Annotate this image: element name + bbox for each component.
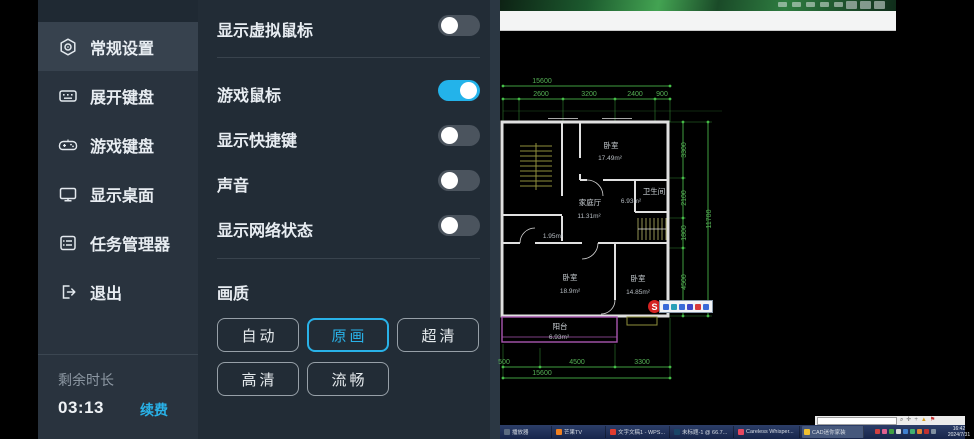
status-bar-spacer (0, 0, 38, 439)
widget-icon[interactable] (687, 304, 693, 310)
system-tray[interactable] (875, 429, 936, 434)
room-bedroom3-name: 卧室 (631, 273, 646, 283)
toggle-network-status[interactable] (438, 215, 480, 236)
room-bedroom1-area: 17.49m² (598, 155, 623, 162)
sidebar-item-label: 显示桌面 (90, 182, 154, 206)
toggle-label-shortcuts: 显示快捷键 (217, 127, 297, 151)
keyboard-icon (58, 86, 78, 106)
taskbar-app-cad[interactable]: CAD迷你家装 (802, 426, 864, 438)
monitor-icon (58, 184, 78, 204)
sidebar-item-label: 退出 (90, 280, 122, 304)
room-bedroom3-area: 14.85m² (626, 289, 651, 296)
sidebar-item-exit[interactable]: 退出 (38, 267, 198, 316)
sidebar-divider (38, 354, 198, 355)
dim-right-4: 4500 (681, 274, 688, 290)
toggle-label-network-status: 显示网络状态 (217, 217, 313, 241)
sidebar-top-band (38, 0, 198, 22)
room-bedroom1-name: 卧室 (604, 140, 619, 150)
taskbar-app-mangotv[interactable]: 芒果TV (554, 426, 606, 438)
taskbar-clock: 16:42 2024/7/31 (944, 426, 974, 438)
magnifier-icon[interactable]: ⌕ (900, 417, 903, 424)
sidebar-item-task-manager[interactable]: 任务管理器 (38, 218, 198, 267)
sidebar-item-label: 游戏键盘 (90, 133, 154, 157)
quality-option-ultra[interactable]: 超清 (397, 318, 479, 352)
app-icon (504, 429, 510, 435)
widget-icon[interactable] (695, 304, 701, 310)
room-balcony-name: 阳台 (553, 321, 568, 331)
divider (217, 258, 480, 259)
warning-icon[interactable]: ▲ (921, 417, 927, 424)
sidebar-item-label: 任务管理器 (90, 231, 170, 255)
taskbar-app-wps[interactable]: 文字文稿1 - WPS... (608, 426, 670, 438)
remaining-time-label: 剩余时长 (58, 370, 114, 390)
dim-right-total: 11700 (706, 209, 713, 228)
renew-button[interactable]: 续费 (140, 400, 168, 420)
sidebar-item-label: 展开键盘 (90, 84, 154, 108)
dim-bottom-2: 4500 (569, 359, 585, 366)
toggle-shortcuts[interactable] (438, 125, 480, 146)
toggle-game-mouse[interactable] (438, 80, 480, 101)
sidebar-item-general-settings[interactable]: 常规设置 (38, 22, 198, 71)
settings-panel: 显示虚拟鼠标 游戏鼠标 显示快捷键 声音 显示网络状态 画质 自动 原画 超清 … (198, 0, 490, 439)
taskbar-app-photoshop[interactable]: 未标题-1 @ 66.7... (672, 426, 734, 438)
widget-icon[interactable] (703, 304, 709, 310)
plus-icon[interactable]: + (914, 417, 918, 424)
dim-top-1: 2600 (533, 91, 549, 98)
task-list-icon (58, 233, 78, 253)
toggle-label-game-mouse: 游戏鼠标 (217, 82, 281, 106)
toggle-label-sound: 声音 (217, 172, 249, 196)
quality-option-original[interactable]: 原画 (307, 318, 389, 352)
dim-top-total: 15600 (532, 78, 552, 85)
room-bedroom2-name: 卧室 (563, 272, 578, 282)
sidebar-item-label: 常规设置 (90, 35, 154, 59)
taskbar-app-player[interactable]: 播放器 (502, 426, 552, 438)
toggle-knob (441, 127, 458, 144)
floating-widget-toolbar[interactable]: S (648, 300, 713, 313)
mango-tv-icon (556, 429, 562, 435)
photoshop-icon (674, 429, 680, 435)
music-icon (738, 429, 744, 435)
widget-icon[interactable] (671, 304, 677, 310)
dim-top-2: 3200 (581, 91, 597, 98)
staircase-upper (520, 143, 552, 190)
quality-option-hd[interactable]: 高清 (217, 362, 299, 396)
sidebar-item-expand-keyboard[interactable]: 展开键盘 (38, 71, 198, 120)
dim-top-4: 900 (656, 91, 668, 98)
widget-icon[interactable] (679, 304, 685, 310)
room-familyhall-area: 11.31m² (577, 213, 601, 220)
staircase-lower (638, 218, 666, 240)
dim-bottom-1: 500 (498, 359, 510, 366)
toggle-sound[interactable] (438, 170, 480, 191)
quality-section-title: 画质 (217, 280, 249, 304)
windows-taskbar: 播放器 芒果TV 文字文稿1 - WPS... 未标题-1 @ 66.7... … (500, 425, 965, 439)
sidebar-item-game-keyboard[interactable]: 游戏键盘 (38, 120, 198, 169)
cad-app-icon (804, 429, 810, 435)
toggle-virtual-mouse[interactable] (438, 15, 480, 36)
wps-icon (610, 429, 616, 435)
command-input[interactable] (817, 417, 897, 425)
dim-bottom-3: 3300 (634, 359, 650, 366)
toggle-knob (460, 82, 477, 99)
cad-floorplan-canvas: 15600 2600 3200 2400 900 3300 2100 1800 … (490, 0, 974, 439)
taskbar-app-music[interactable]: Careless Whisper... (736, 426, 800, 438)
room-balcony-area: 6.93m² (549, 334, 570, 341)
room-bedroom2-area: 18.9m² (560, 288, 581, 295)
divider (217, 57, 480, 58)
gear-icon (58, 37, 78, 57)
remote-desktop-view[interactable]: 15600 2600 3200 2400 900 3300 2100 1800 … (490, 0, 974, 439)
toggle-knob (441, 17, 458, 34)
cursor-icon[interactable]: ✛ (906, 417, 911, 424)
dim-top-3: 2400 (627, 91, 643, 98)
room-familyhall-name: 家庭厅 (579, 197, 602, 207)
flag-icon[interactable]: ⚑ (930, 417, 935, 424)
room-bathroom-area: 6.93m² (621, 198, 642, 205)
toggle-label-virtual-mouse: 显示虚拟鼠标 (217, 17, 313, 41)
exit-icon (58, 282, 78, 302)
toggle-knob (441, 217, 458, 234)
sidebar: 常规设置 展开键盘 游戏键盘 显示桌面 任务管理器 (38, 0, 198, 439)
remaining-time-value: 03:13 (58, 398, 104, 418)
dim-bottom-total: 15600 (532, 370, 552, 377)
widget-icon-bar (659, 300, 713, 313)
widget-icon[interactable] (663, 304, 669, 310)
sidebar-item-show-desktop[interactable]: 显示桌面 (38, 169, 198, 218)
quality-option-smooth[interactable]: 流畅 (307, 362, 389, 396)
cad-command-bar: ⌕ ✛ + ▲ ⚑ (815, 416, 965, 425)
toggle-knob (441, 172, 458, 189)
quality-option-auto[interactable]: 自动 (217, 318, 299, 352)
dim-right-3: 1800 (681, 225, 688, 241)
dim-right-1: 3300 (681, 142, 688, 158)
room-small-area: 1.95m² (543, 233, 564, 240)
dim-right-2: 2100 (681, 190, 688, 206)
gamepad-icon (58, 135, 78, 155)
room-bathroom-name: 卫生间 (643, 186, 666, 196)
